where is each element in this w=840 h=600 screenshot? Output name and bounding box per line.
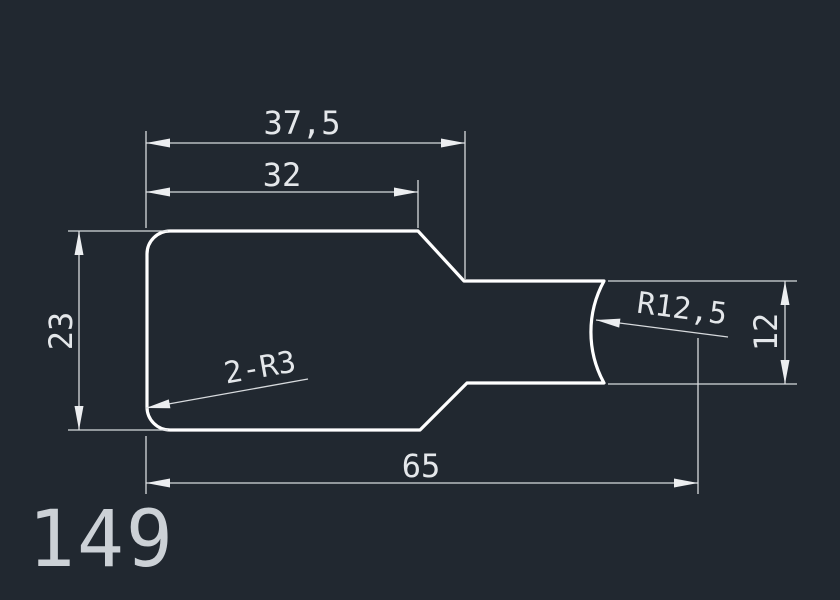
arrowhead-top — [781, 281, 790, 305]
leader-label: R12,5 — [635, 286, 729, 332]
dimension-label: 23 — [42, 312, 80, 351]
arrowhead-top — [75, 231, 84, 255]
part-number-text[interactable]: 149 — [28, 495, 175, 585]
arrowhead-bottom — [781, 360, 790, 384]
dimension-top-inner-width[interactable]: 32 — [146, 156, 418, 228]
model-space[interactable]: 37,5 32 23 65 12 2-R3 — [0, 0, 840, 600]
leader-end-arc-radius[interactable]: R12,5 — [596, 286, 729, 337]
part-profile-path[interactable] — [147, 231, 604, 430]
arrowhead-left — [146, 188, 170, 197]
leader-label: 2-R3 — [221, 344, 298, 391]
dimension-label: 32 — [263, 156, 302, 194]
dimension-label: 65 — [402, 447, 441, 485]
dimension-label: 37,5 — [263, 104, 340, 142]
arrowhead — [146, 399, 170, 408]
dimension-label: 12 — [747, 313, 785, 352]
cad-canvas[interactable]: 37,5 32 23 65 12 2-R3 — [0, 0, 840, 600]
arrowhead-right — [441, 139, 465, 148]
arrowhead-right — [394, 188, 418, 197]
arrowhead — [596, 319, 620, 328]
arrowhead-left — [146, 139, 170, 148]
leader-fillet-note[interactable]: 2-R3 — [146, 344, 308, 408]
part-outline[interactable] — [147, 231, 604, 430]
dimension-left-height[interactable]: 23 — [42, 231, 168, 430]
arrowhead-right — [674, 479, 698, 488]
arrowhead-bottom — [75, 406, 84, 430]
arrowhead-left — [146, 479, 170, 488]
